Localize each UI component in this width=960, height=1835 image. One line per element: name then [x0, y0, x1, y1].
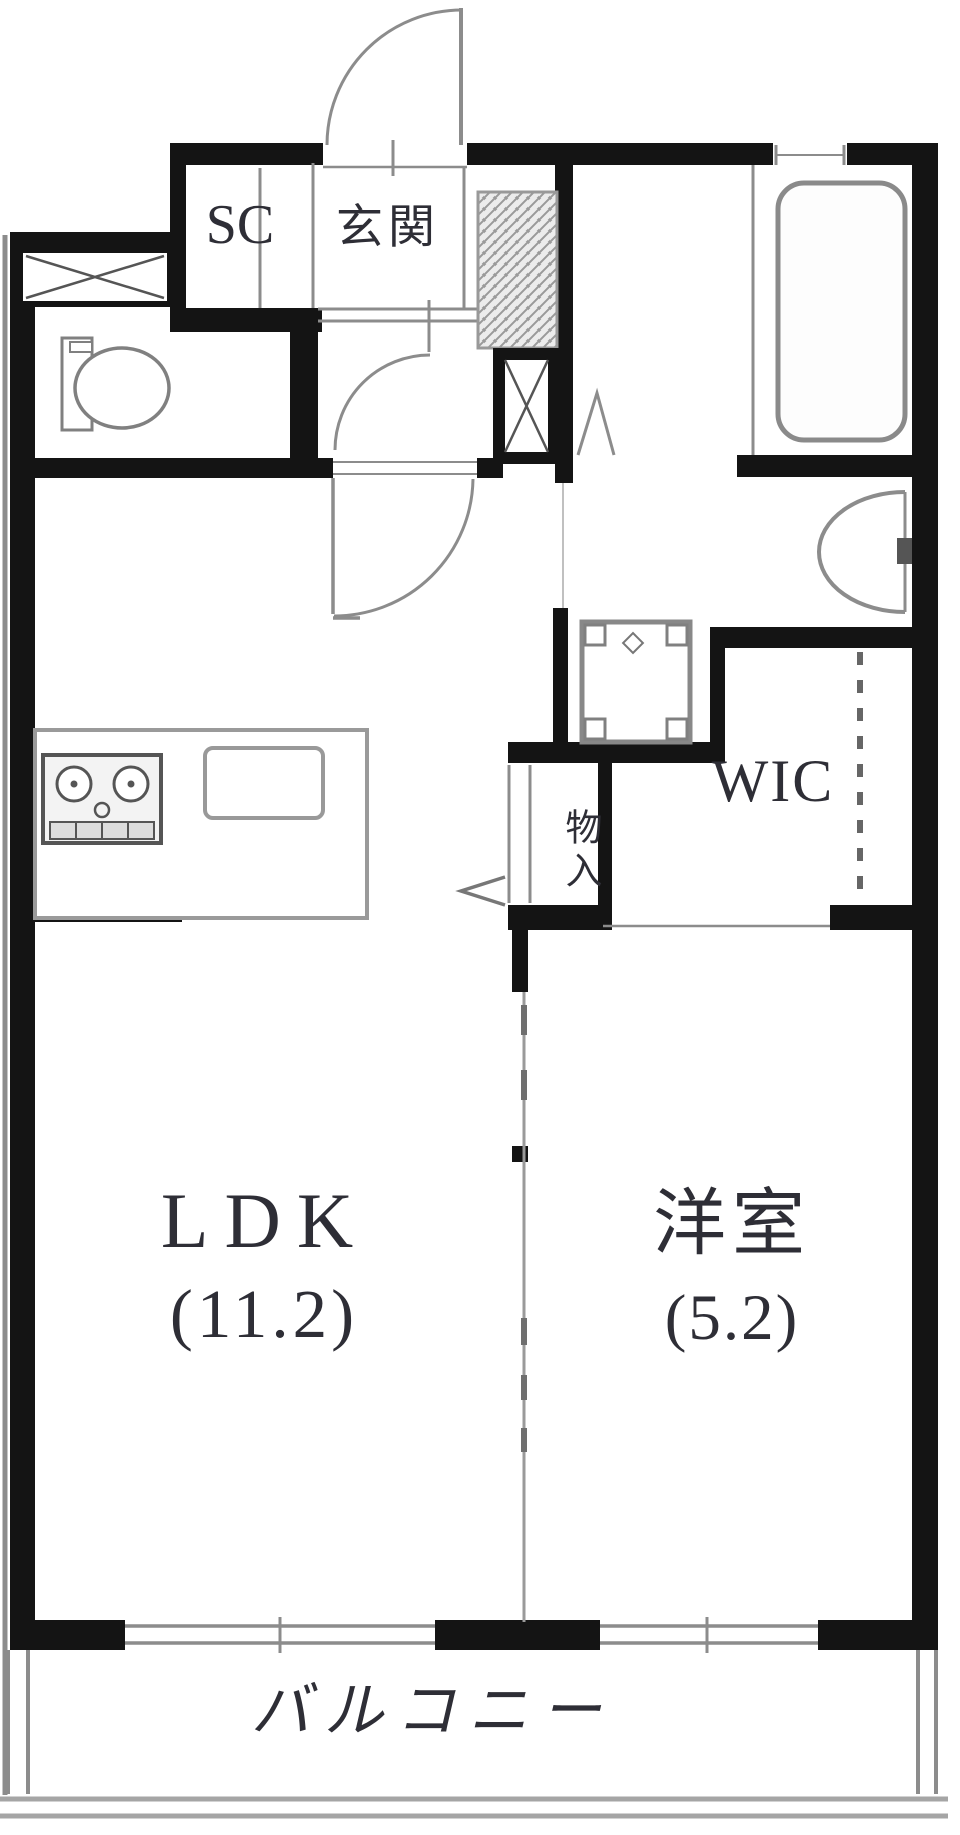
wall-bottom-center	[435, 1620, 600, 1650]
wall-room-divider-nub	[512, 1146, 528, 1162]
stove-burner-left-dot	[71, 781, 78, 788]
walk-in-closet-label: WIC	[686, 750, 860, 813]
wall-storage-wic-divider	[598, 763, 612, 930]
stove-burner-right-dot	[128, 781, 135, 788]
washing-pan-corner-2	[667, 625, 687, 645]
washing-pan-corner-1	[585, 625, 605, 645]
ldk-door-arc	[334, 479, 473, 616]
utility-shaft-panel	[478, 192, 557, 348]
wall-top-center	[467, 143, 773, 165]
wall-toilet-right	[290, 320, 318, 460]
bathtub	[778, 183, 905, 440]
entrance-door-arc	[327, 10, 462, 145]
wall-bottom-right	[818, 1620, 938, 1650]
washing-pan-corner-3	[585, 719, 605, 739]
wall-bath-bottom	[737, 455, 938, 477]
wall-hall-ldk	[10, 458, 333, 478]
floor-plan: SC 玄関 WIC 物入 LDK (11.2) 洋室 (5.2) バルコニー	[0, 0, 960, 1835]
toilet-bowl	[75, 348, 169, 428]
toilet-door-arc	[335, 355, 430, 450]
entry-direction-arrow-icon	[461, 877, 505, 905]
washbasin-faucet-icon	[897, 538, 912, 564]
wall-right	[912, 143, 938, 1648]
ldk-label: LDK	[128, 1180, 402, 1262]
wall-left	[10, 232, 35, 1648]
kitchen-sink	[205, 748, 323, 818]
wall-room-divider-top	[512, 928, 528, 992]
wall-bottom-left	[10, 1620, 125, 1650]
shoe-closet-label: SC	[188, 196, 292, 255]
washing-pan-corner-4	[667, 719, 687, 739]
wall-washroom-left-lower	[553, 608, 568, 760]
floor-plan-canvas	[0, 0, 960, 1835]
western-room-size-label: (5.2)	[628, 1284, 836, 1352]
entrance-label: 玄関	[314, 204, 462, 253]
balcony-label: バルコニー	[175, 1680, 700, 1743]
toilet-flush-handle	[70, 342, 92, 352]
western-room-label: 洋室	[623, 1186, 841, 1263]
bath-door-mark	[578, 393, 614, 455]
washbasin	[819, 492, 905, 612]
wall-top-left	[170, 143, 323, 165]
ldk-size-label: (11.2)	[114, 1278, 414, 1350]
wall-wic-top	[710, 627, 938, 648]
storage-label: 物入	[544, 786, 598, 916]
wall-wic-bottom	[830, 905, 938, 930]
